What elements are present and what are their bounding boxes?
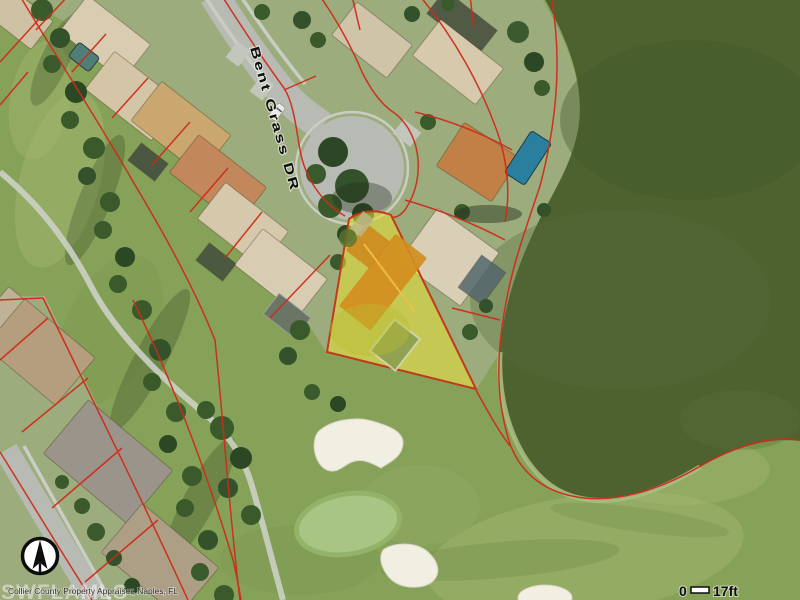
tree	[306, 164, 326, 184]
water-texture	[680, 390, 800, 450]
aerial-map-view[interactable]: Bent Grass DR SWFLAMLS Collier County Pr…	[0, 0, 800, 600]
tree	[330, 396, 346, 412]
tree	[87, 523, 105, 541]
tree	[404, 6, 420, 22]
tree	[198, 530, 218, 550]
scale-zero: 0	[679, 583, 687, 599]
scale-bar-segment	[691, 587, 709, 593]
tree	[462, 324, 478, 340]
tree	[537, 203, 551, 217]
tree	[197, 401, 215, 419]
tree	[318, 137, 348, 167]
tree	[61, 111, 79, 129]
tree	[524, 52, 544, 72]
tree	[159, 435, 177, 453]
tree	[304, 384, 320, 400]
tree	[176, 499, 194, 517]
tree	[143, 373, 161, 391]
tree	[230, 447, 252, 469]
tree	[279, 347, 297, 365]
tree	[290, 320, 310, 340]
grass-patch	[330, 304, 410, 356]
tree	[534, 80, 550, 96]
tree	[241, 505, 261, 525]
tree	[100, 192, 120, 212]
map-canvas[interactable]: Bent Grass DR SWFLAMLS Collier County Pr…	[0, 0, 800, 600]
tree	[507, 21, 529, 43]
water-texture	[470, 210, 770, 390]
tree	[115, 247, 135, 267]
tree	[55, 475, 69, 489]
tree	[310, 32, 326, 48]
shadow	[332, 182, 392, 214]
tree	[83, 137, 105, 159]
tree	[31, 0, 53, 21]
north-compass-icon	[23, 539, 58, 574]
tree	[109, 275, 127, 293]
tree	[479, 299, 493, 313]
tree	[50, 28, 70, 48]
tree	[74, 498, 90, 514]
tree	[78, 167, 96, 185]
scale-distance: 17ft	[713, 583, 738, 599]
north-arrow-stem	[39, 563, 41, 572]
tree	[182, 466, 202, 486]
tree	[191, 563, 209, 581]
tree	[94, 221, 112, 239]
tree	[254, 4, 270, 20]
tree	[293, 11, 311, 29]
attribution-text: Collier County Property Appraiser, Naple…	[8, 586, 178, 596]
tree	[339, 229, 357, 247]
